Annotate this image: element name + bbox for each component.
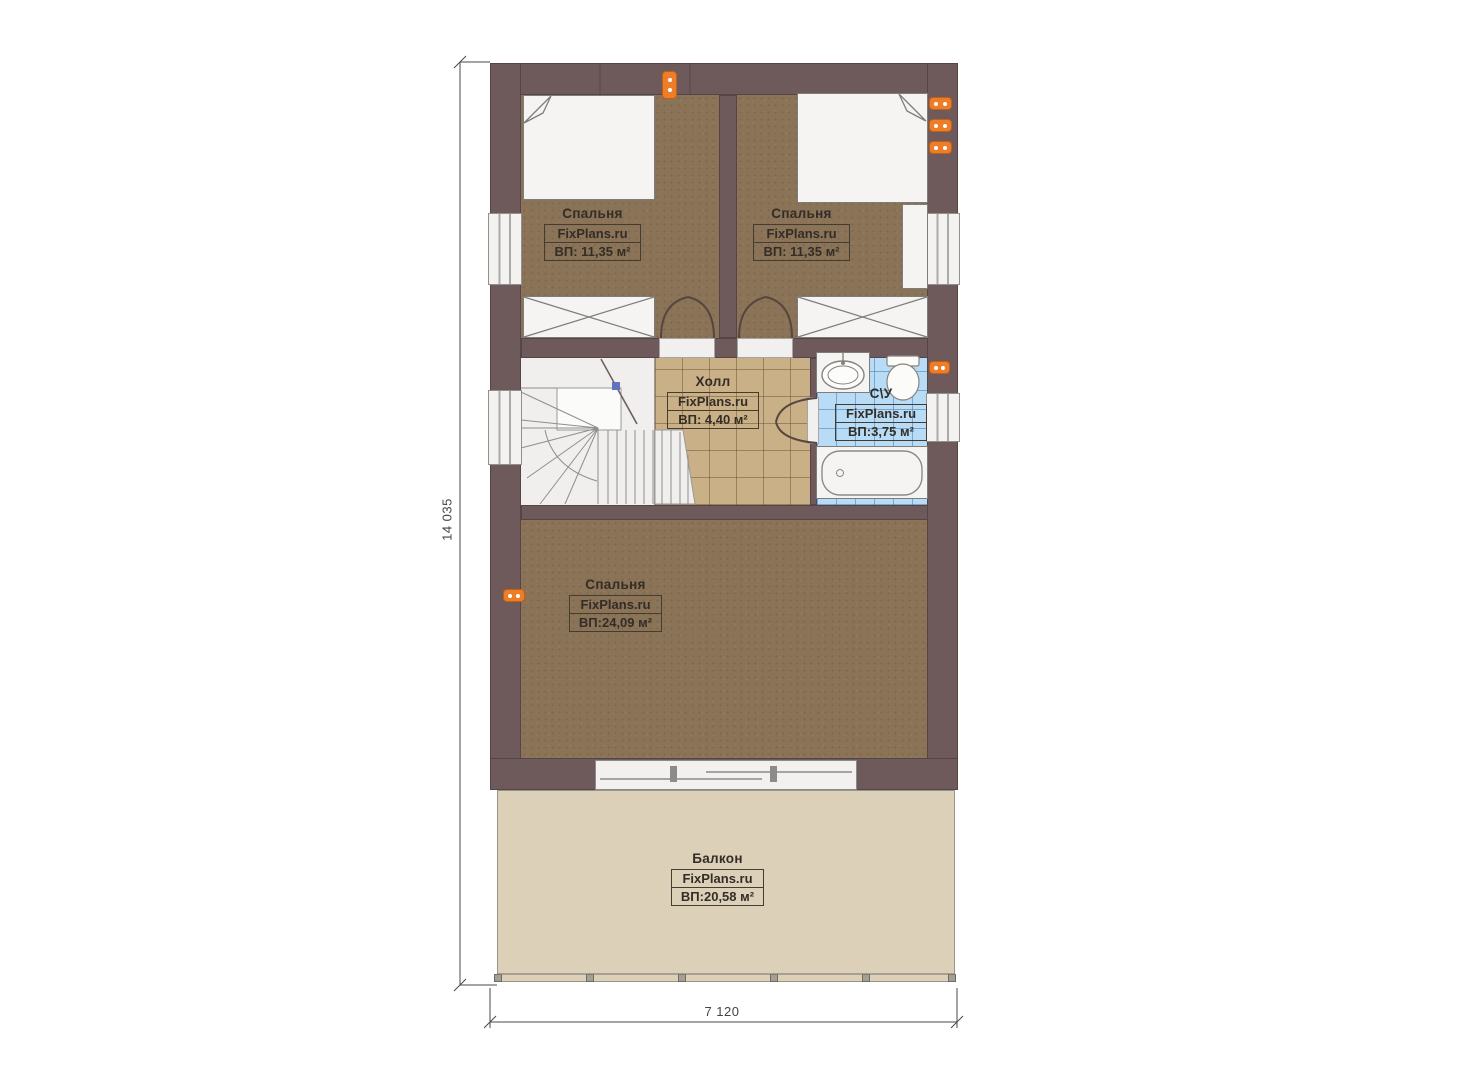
railing-post (862, 974, 870, 982)
power-outlet-icon (929, 119, 952, 132)
brand-text: FixPlans.ru (672, 870, 763, 888)
room-label-bedroom-3: Спальня FixPlans.ru ВП:24,09 м² (538, 577, 693, 632)
railing-post (770, 974, 778, 982)
floor-plan-page: Спальня FixPlans.ru ВП: 11,35 м² Спальня… (0, 0, 1474, 1080)
railing-post (494, 974, 502, 982)
railing-post (678, 974, 686, 982)
room-label-bedroom-2: Спальня FixPlans.ru ВП: 11,35 м² (724, 206, 879, 261)
power-outlet-icon (662, 71, 677, 99)
room-area: ВП: 4,40 м² (668, 411, 758, 428)
railing-post (586, 974, 594, 982)
brand-text: FixPlans.ru (545, 225, 639, 243)
room-label-hall: Холл FixPlans.ru ВП: 4,40 м² (640, 374, 786, 429)
room-area: ВП: 11,35 м² (754, 243, 848, 260)
room-label-bedroom-1: Спальня FixPlans.ru ВП: 11,35 м² (515, 206, 670, 261)
staircase-area (521, 358, 655, 505)
bathtub (816, 446, 928, 499)
window-left-stairs (488, 390, 522, 465)
power-outlet-icon (503, 589, 525, 602)
room-info-box: FixPlans.ru ВП: 11,35 м² (753, 224, 849, 261)
power-outlet-icon (929, 97, 952, 110)
room-area: ВП:20,58 м² (672, 888, 763, 905)
brand-text: FixPlans.ru (754, 225, 848, 243)
room-title: С\У (808, 386, 954, 401)
room-area: ВП:24,09 м² (570, 614, 661, 631)
room-info-box: FixPlans.ru ВП:3,75 м² (835, 404, 927, 441)
door-opening-bedroom2 (737, 338, 793, 358)
room-info-box: FixPlans.ru ВП: 4,40 м² (667, 392, 759, 429)
room-title: Спальня (538, 577, 693, 592)
bedroom-3-floor (521, 520, 928, 758)
room-info-box: FixPlans.ru ВП:20,58 м² (671, 869, 764, 906)
brand-text: FixPlans.ru (836, 405, 926, 423)
room-area: ВП: 11,35 м² (545, 243, 639, 260)
room-title: Спальня (724, 206, 879, 221)
room-title: Спальня (515, 206, 670, 221)
sliding-door-balcony (595, 760, 857, 790)
power-outlet-icon (929, 141, 952, 154)
room-title: Балкон (640, 851, 795, 866)
railing-post (948, 974, 956, 982)
room-info-box: FixPlans.ru ВП: 11,35 м² (544, 224, 640, 261)
bed-bedroom2 (797, 93, 928, 203)
nightstand-bedroom2 (902, 204, 928, 289)
room-title: Холл (640, 374, 786, 389)
room-label-bathroom: С\У FixPlans.ru ВП:3,75 м² (808, 386, 954, 441)
dimension-vertical: 14 035 (440, 477, 455, 563)
dimension-horizontal: 7 120 (682, 1004, 762, 1019)
wall-hall-bedroom3 (521, 505, 928, 520)
wardrobe-bedroom2 (797, 296, 928, 338)
bed-bedroom1 (523, 95, 655, 200)
brand-text: FixPlans.ru (668, 393, 758, 411)
room-area: ВП:3,75 м² (836, 423, 926, 440)
wardrobe-bedroom1 (523, 296, 655, 338)
room-info-box: FixPlans.ru ВП:24,09 м² (569, 595, 662, 632)
room-label-balcony: Балкон FixPlans.ru ВП:20,58 м² (640, 851, 795, 906)
power-outlet-icon (929, 361, 950, 374)
window-right-bedroom2 (926, 213, 960, 285)
wall-top (490, 63, 958, 95)
door-opening-bedroom1 (659, 338, 715, 358)
brand-text: FixPlans.ru (570, 596, 661, 614)
